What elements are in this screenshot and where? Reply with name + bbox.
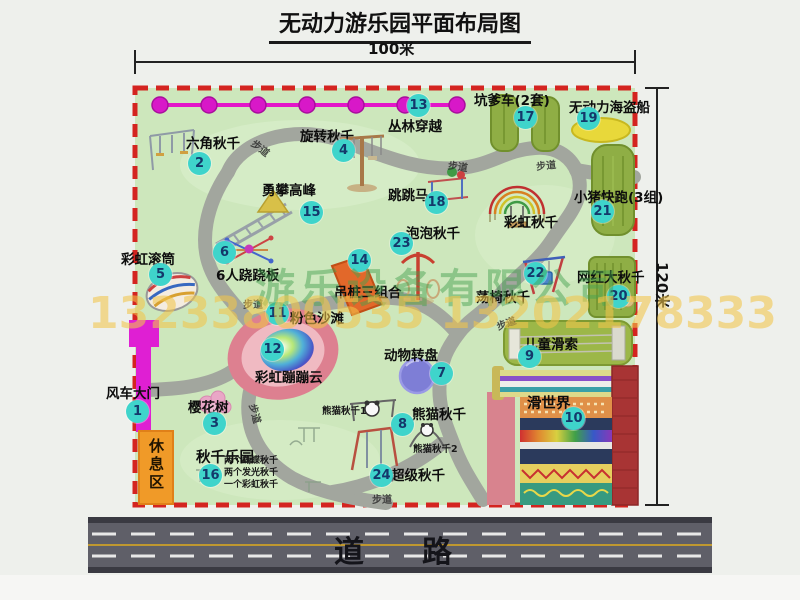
walkway-label: 步道 — [447, 157, 469, 175]
marker-2: 2 — [188, 152, 211, 175]
park-layout-map: 无动力游乐园平面布局图 100米 120米 道 路 休息区 步道 步道 步道 步… — [0, 0, 800, 600]
marker-22: 22 — [524, 262, 547, 285]
marker-1: 1 — [126, 400, 149, 423]
walkway-label: 步道 — [372, 491, 392, 506]
marker-4: 4 — [332, 139, 355, 162]
label-jumping-horse: 跳跳马 — [388, 184, 429, 204]
rest-area-label: 休息区 — [146, 438, 167, 492]
slide-world-icon — [487, 366, 638, 505]
marker-5: 5 — [149, 263, 172, 286]
label-pink-beach: 粉色沙滩 — [290, 307, 344, 327]
marker-11: 11 — [266, 302, 289, 325]
label-piggy-run: 小猪快跑(3组) — [574, 186, 663, 206]
marker-13: 13 — [407, 94, 430, 117]
label-panda-swing-1: 熊猫秋千1 — [322, 403, 367, 417]
bottom-margin — [0, 575, 800, 600]
label-climbing-peak: 勇攀高峰 — [262, 179, 316, 199]
marker-21: 21 — [591, 200, 614, 223]
label-rainbow-swing: 彩虹秋千 — [504, 211, 558, 231]
marker-12: 12 — [261, 338, 284, 361]
marker-8: 8 — [391, 413, 414, 436]
marker-20: 20 — [607, 285, 630, 308]
width-dimension-label: 100米 — [368, 38, 414, 59]
marker-17: 17 — [514, 106, 537, 129]
label-jungle-zipline: 丛林穿越 — [388, 115, 442, 135]
note-line: 一个彩虹秋千 — [224, 479, 278, 491]
marker-24: 24 — [370, 464, 393, 487]
marker-10: 10 — [562, 407, 585, 430]
label-super-swing: 超级秋千 — [391, 464, 445, 484]
marker-19: 19 — [577, 107, 600, 130]
label-bubble-swing: 泡泡秋千 — [406, 222, 460, 242]
label-panda-swing-2: 熊猫秋千2 — [413, 441, 458, 455]
marker-16: 16 — [199, 464, 222, 487]
animal-turntable-icon — [400, 359, 434, 393]
walkway-label: 步道 — [243, 296, 263, 311]
walkway-label: 步道 — [535, 156, 556, 173]
label-hexagon-swing: 六角秋千 — [186, 132, 240, 152]
label-panda-swing: 熊猫秋千 — [412, 403, 466, 423]
label-chair-swing: 荡椅秋千 — [476, 286, 530, 306]
marker-6: 6 — [213, 241, 236, 264]
label-rainbow-cloud: 彩虹蹦蹦云 — [255, 366, 323, 386]
note-line: 两个发光秋千 — [224, 467, 278, 479]
marker-3: 3 — [203, 412, 226, 435]
height-dimension-label: 120米 — [652, 262, 673, 308]
marker-18: 18 — [425, 191, 448, 214]
label-windmill-gate: 风车大门 — [106, 382, 160, 402]
label-hanging-pile: 吊桩三组合 — [334, 281, 402, 301]
label-big-swing: 网红大秋千 — [577, 266, 645, 286]
marker-14: 14 — [348, 249, 371, 272]
marker-23: 23 — [390, 232, 413, 255]
label-pit-car: 坑爹车(2套) — [474, 89, 550, 109]
swing-paradise-notes: 两个蝴蝶秋千 两个发光秋千 一个彩虹秋千 — [224, 455, 278, 491]
marker-9: 9 — [518, 345, 541, 368]
label-seesaw: 6人跷跷板 — [216, 264, 279, 284]
marker-7: 7 — [430, 362, 453, 385]
label-animal-turntable: 动物转盘 — [384, 344, 438, 364]
road-label: 道 路 — [334, 527, 466, 571]
note-line: 两个蝴蝶秋千 — [224, 455, 278, 467]
marker-15: 15 — [300, 201, 323, 224]
